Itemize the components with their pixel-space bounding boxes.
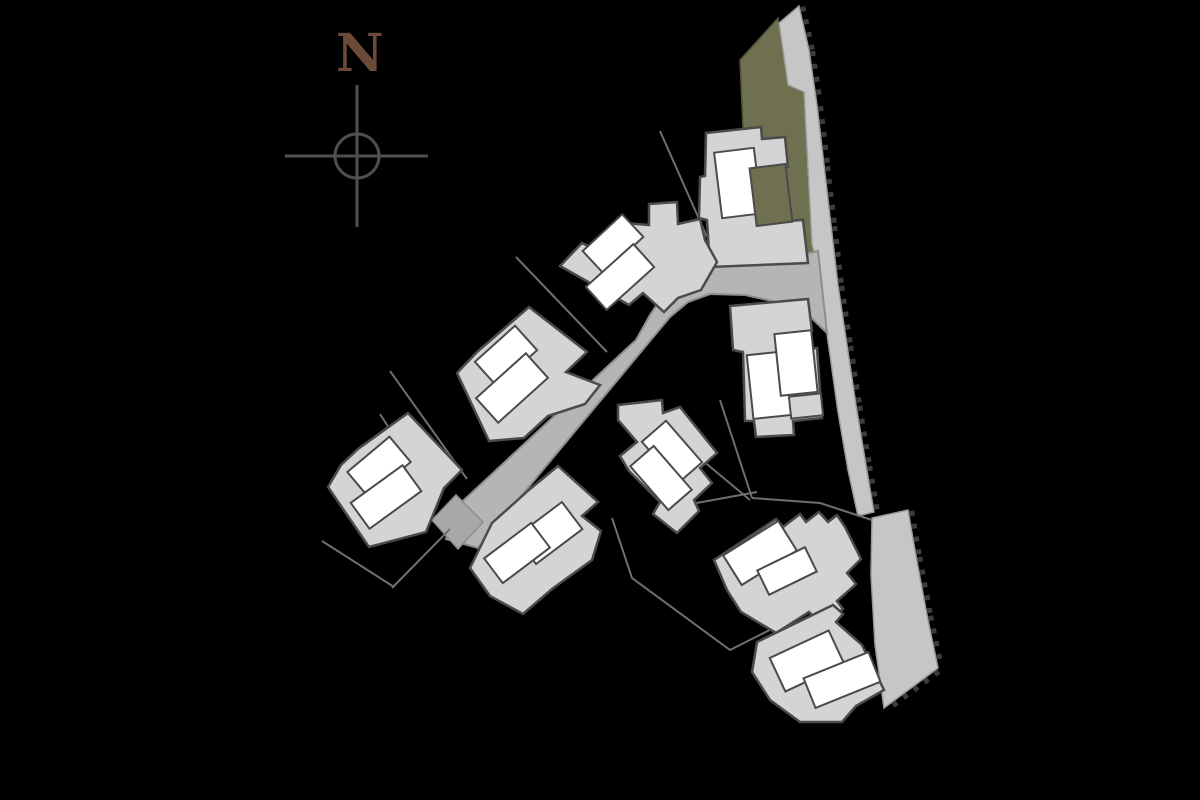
building-6 [618, 400, 717, 533]
north-label: N [336, 23, 384, 84]
hatch-tick [914, 536, 920, 542]
hatch-tick [867, 466, 873, 472]
hatch-tick [832, 226, 838, 232]
hatch-tick [843, 311, 849, 317]
hatch-tick [922, 582, 928, 588]
building-7 [730, 299, 823, 437]
hatch-tick [841, 298, 847, 304]
hatch-tick [872, 491, 878, 497]
hatch-tick [810, 51, 816, 57]
hatch-tick [834, 239, 840, 245]
hatch-tick [823, 145, 829, 151]
hatch-tick [927, 607, 933, 613]
hatch-tick [859, 418, 865, 424]
hatch-tick [806, 32, 812, 38]
hatch-tick [856, 397, 862, 403]
hatch-tick [827, 179, 833, 185]
hatch-tick [814, 76, 820, 82]
plot-boundary-line [322, 541, 394, 587]
hatch-tick [845, 324, 851, 330]
hatch-tick [821, 132, 827, 138]
hatch-tick [917, 556, 923, 562]
hatch-tick [825, 166, 831, 172]
hatch-tick [924, 595, 930, 601]
hatch-tick [934, 641, 940, 647]
hatch-tick [838, 277, 844, 283]
hatch-tick [854, 384, 860, 390]
hatch-tick [809, 44, 815, 50]
hatch-tick [824, 157, 830, 163]
hatch-tick [931, 628, 937, 634]
hatch-tick [835, 252, 841, 258]
site-plan: N [0, 0, 1200, 800]
building-7-unit [774, 330, 817, 396]
hatch-tick [800, 6, 806, 12]
hatch-tick [864, 444, 870, 450]
hatch-tick [920, 569, 926, 575]
hatch-tick [869, 478, 875, 484]
building-1-green [750, 164, 793, 226]
hatch-tick [852, 371, 858, 377]
building-7-patio [789, 393, 823, 418]
hatch-tick [866, 457, 872, 463]
north-indicator: N [285, 23, 428, 227]
hatch-tick [830, 205, 836, 211]
hatch-tick [912, 523, 918, 529]
hatch-tick [850, 358, 856, 364]
hatch-tick [839, 286, 845, 292]
hatch-tick [848, 346, 854, 352]
hatch-tick [847, 337, 853, 343]
hatch-tick [837, 265, 843, 271]
hatch-tick [862, 431, 868, 437]
hatch-tick [936, 653, 942, 659]
hatch-tick [928, 615, 934, 621]
hatch-tick [828, 192, 834, 198]
hatch-tick [816, 89, 822, 95]
hatch-tick [909, 510, 915, 516]
hatch-tick [818, 106, 824, 112]
hatch-tick [916, 549, 922, 555]
site-plan-drawing: N [0, 0, 1200, 800]
hatch-tick [857, 406, 863, 412]
hatch-tick [874, 504, 880, 510]
hatch-tick [812, 63, 818, 69]
hatch-tick [831, 217, 837, 223]
hatch-tick [803, 19, 809, 25]
hatch-tick [820, 119, 826, 125]
